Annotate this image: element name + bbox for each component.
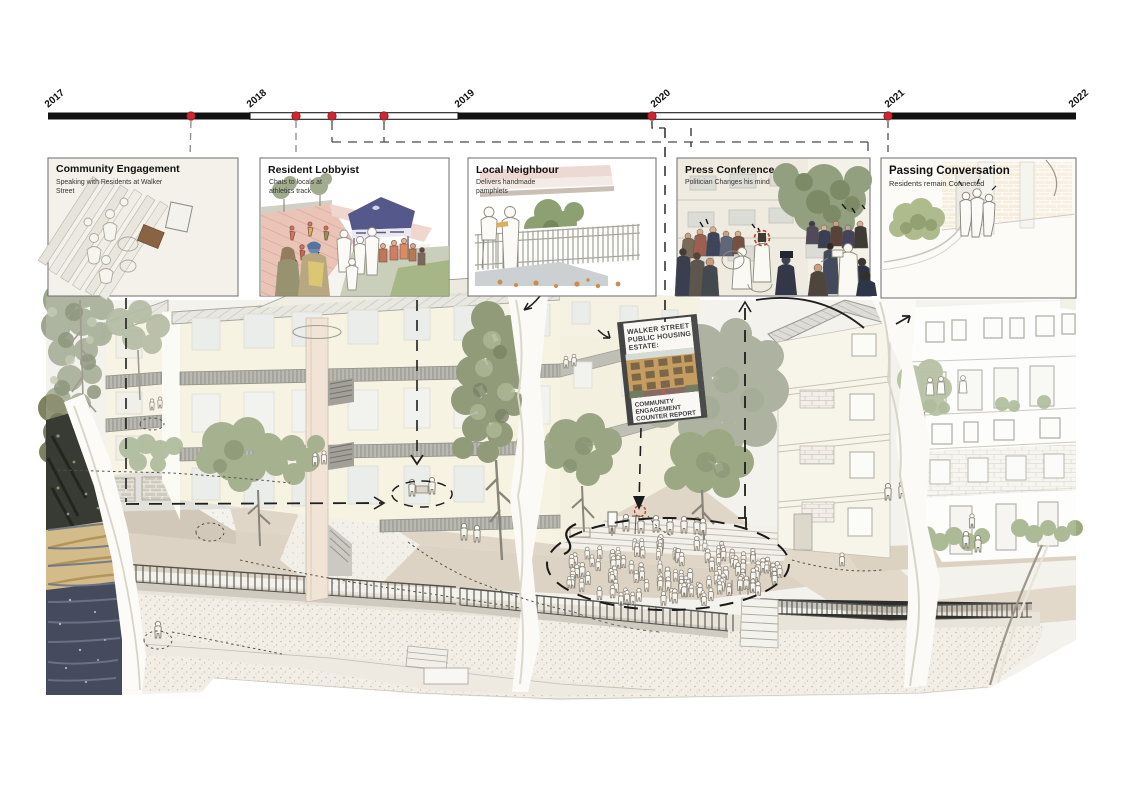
svg-text:Politician Changes his mind: Politician Changes his mind bbox=[685, 179, 770, 186]
svg-text:Residents remain Connected: Residents remain Connected bbox=[889, 179, 984, 188]
svg-text:pamphlets: pamphlets bbox=[476, 188, 508, 195]
svg-text:Street: Street bbox=[56, 188, 74, 195]
svg-text:Community Engagement: Community Engagement bbox=[56, 163, 180, 175]
svg-text:Passing Conversation: Passing Conversation bbox=[889, 165, 1010, 177]
svg-text:Local Neighbour: Local Neighbour bbox=[476, 164, 559, 176]
svg-text:Press Conference: Press Conference bbox=[685, 164, 774, 176]
svg-text:athletics track: athletics track bbox=[269, 188, 312, 195]
svg-text:Chats to locals at: Chats to locals at bbox=[269, 179, 322, 186]
svg-text:Delivers handmade: Delivers handmade bbox=[476, 179, 536, 186]
svg-text:Speaking with Residents at Wal: Speaking with Residents at Walker bbox=[56, 179, 163, 186]
svg-text:Resident Lobbyist: Resident Lobbyist bbox=[268, 164, 360, 176]
